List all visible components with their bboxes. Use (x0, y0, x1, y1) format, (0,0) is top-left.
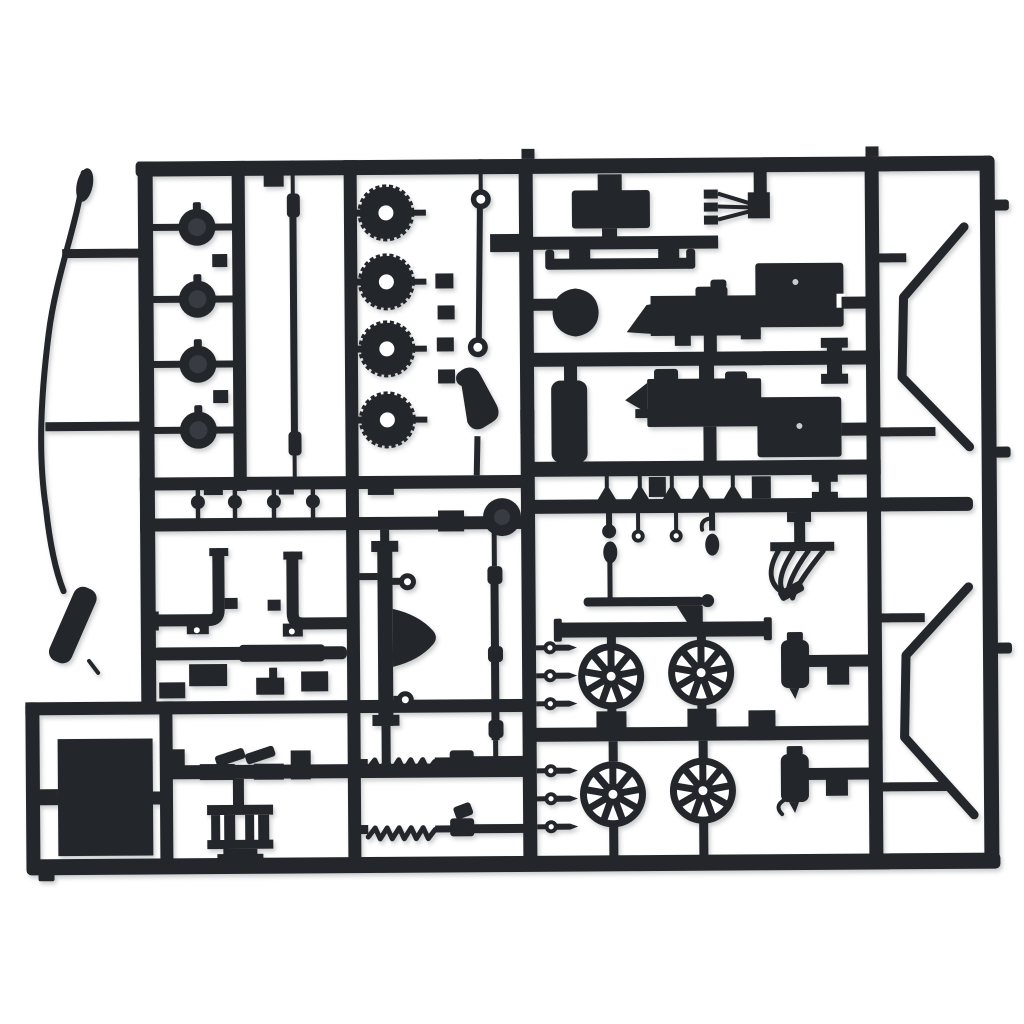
flexible-wire-part (39, 166, 142, 591)
nerf-bar-parts (872, 227, 974, 816)
sled-bar-part (545, 247, 695, 270)
dome-cap-parts (151, 202, 243, 449)
bell-housing-part (526, 288, 598, 337)
photo-stage: Black plastic model kit sprue (parts tre… (0, 0, 1024, 1024)
radius-rod-parts (554, 594, 772, 642)
exhaust-headers-part (770, 512, 835, 602)
spoked-wheel-parts (578, 632, 777, 857)
ignition-wiring-part (704, 170, 770, 224)
channel-post-bracket-part (166, 745, 312, 865)
rear-axle-part (359, 530, 437, 765)
floor-panel-part (33, 738, 164, 856)
muffler-part (45, 583, 100, 673)
sprue-illustration: Black plastic model kit sprue (parts tre… (0, 0, 1024, 1024)
l-pipe-parts (148, 547, 351, 637)
driveshaft-part (487, 529, 504, 763)
spade-pin-parts (598, 472, 771, 502)
ribbed-drum-parts (346, 186, 456, 446)
cylindrical-tank-parts (777, 632, 870, 815)
tie-rod-part (467, 159, 521, 357)
cross-bar-part (141, 644, 347, 698)
radiator-part (572, 174, 650, 239)
i-beam-bracket-small-part (812, 474, 838, 500)
steering-knuckle-part (456, 367, 499, 475)
torsion-rod-part (264, 160, 302, 476)
distributor-part (602, 511, 618, 599)
model-kit-sprue-photo: Black plastic model kit sprue (parts tre… (0, 0, 1024, 1024)
coil-shock-parts (354, 750, 525, 839)
kingpin-part (702, 511, 720, 556)
